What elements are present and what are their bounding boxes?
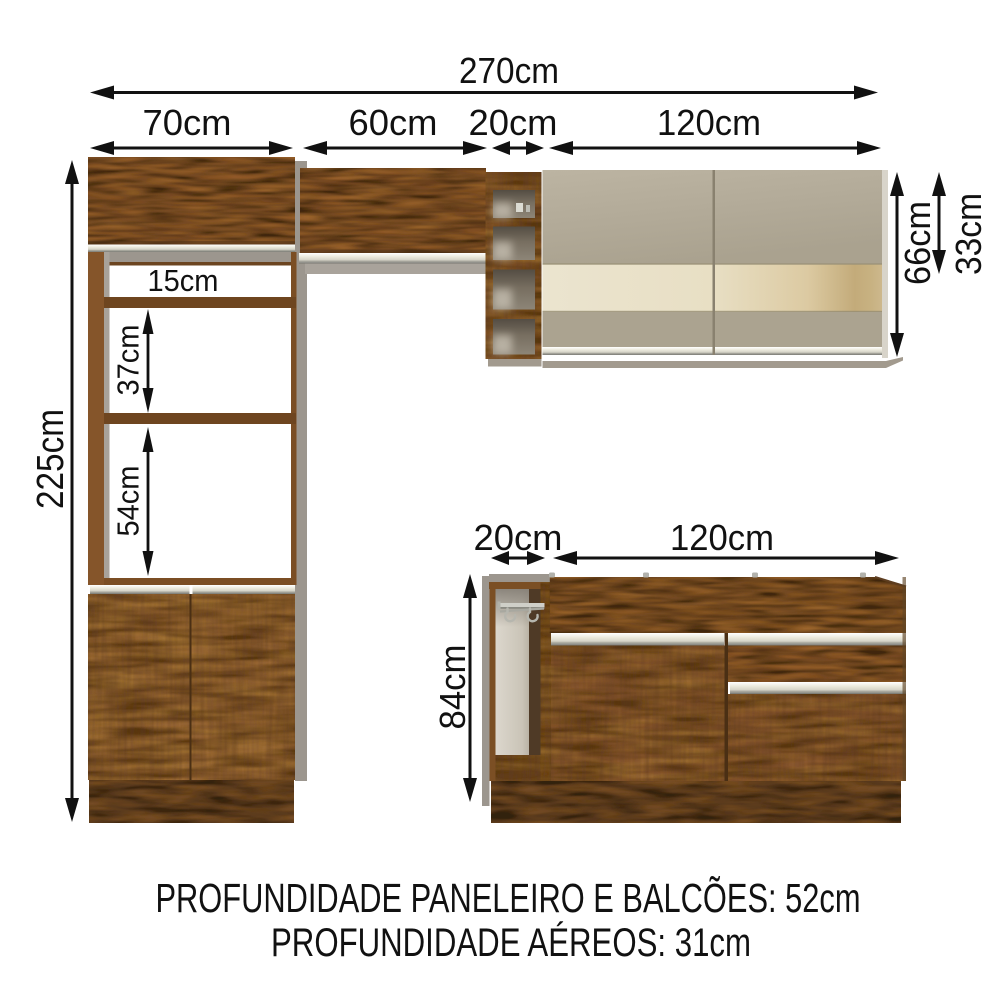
svg-text:20cm: 20cm — [469, 102, 558, 143]
svg-text:54cm: 54cm — [111, 466, 146, 537]
svg-text:37cm: 37cm — [111, 325, 146, 396]
svg-text:225cm: 225cm — [30, 409, 72, 509]
svg-text:66cm: 66cm — [897, 201, 938, 285]
svg-text:PROFUNDIDADE AÉREOS: 31cm: PROFUNDIDADE AÉREOS: 31cm — [271, 920, 751, 965]
svg-text:15cm: 15cm — [148, 263, 219, 298]
svg-text:120cm: 120cm — [657, 102, 761, 143]
svg-text:270cm: 270cm — [459, 50, 559, 91]
svg-text:33cm: 33cm — [948, 193, 989, 275]
svg-text:84cm: 84cm — [432, 645, 473, 730]
svg-text:20cm: 20cm — [474, 517, 563, 558]
svg-text:PROFUNDIDADE PANELEIRO E BALCÕ: PROFUNDIDADE PANELEIRO E BALCÕES: 52cm — [156, 875, 861, 921]
svg-text:60cm: 60cm — [349, 102, 438, 143]
svg-text:70cm: 70cm — [143, 102, 232, 143]
svg-text:120cm: 120cm — [670, 517, 774, 558]
